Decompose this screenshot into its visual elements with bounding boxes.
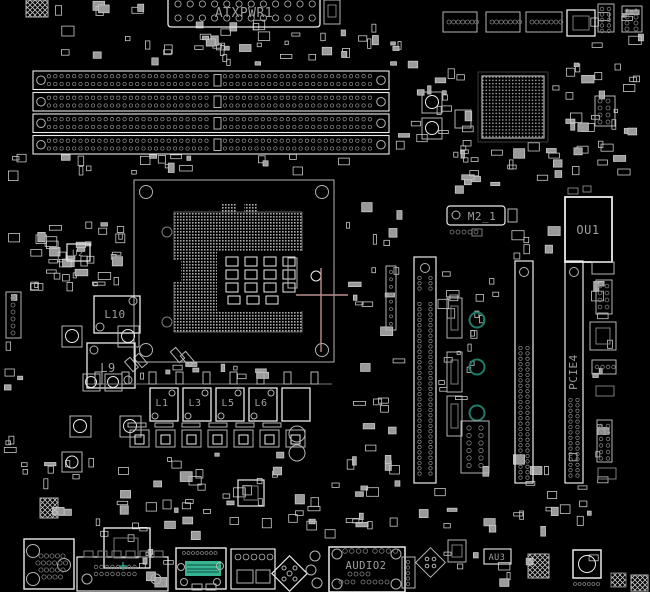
component bbox=[227, 501, 234, 505]
component bbox=[541, 526, 546, 536]
component bbox=[215, 453, 219, 456]
component bbox=[611, 573, 626, 587]
component bbox=[168, 163, 174, 172]
l1-label: L1 bbox=[155, 398, 168, 409]
board-canvas[interactable]: ATXPWR1M2_1OU1PCIE4U2L10L9L1L3L5L6AUDIO2… bbox=[0, 0, 650, 592]
component bbox=[599, 91, 604, 99]
component bbox=[545, 245, 552, 253]
component bbox=[574, 63, 579, 67]
component bbox=[255, 62, 261, 65]
hatched-component-1 bbox=[528, 554, 549, 578]
component bbox=[112, 257, 122, 266]
component bbox=[63, 259, 75, 267]
component bbox=[389, 427, 397, 434]
component bbox=[395, 481, 400, 486]
component bbox=[240, 45, 252, 52]
component bbox=[385, 455, 391, 463]
component bbox=[361, 364, 371, 372]
component bbox=[362, 203, 372, 212]
component bbox=[277, 452, 284, 458]
board-view: ATXPWR1M2_1OU1PCIE4U2L10L9L1L3L5L6AUDIO2… bbox=[0, 0, 650, 592]
component bbox=[489, 525, 496, 532]
component bbox=[120, 506, 128, 514]
component bbox=[447, 508, 457, 511]
l10-label: L10 bbox=[104, 308, 125, 321]
component bbox=[548, 227, 560, 236]
component bbox=[500, 579, 509, 587]
component bbox=[166, 370, 170, 374]
component bbox=[455, 186, 463, 193]
component bbox=[138, 4, 144, 11]
component bbox=[203, 36, 209, 40]
component bbox=[473, 553, 478, 558]
component bbox=[461, 151, 465, 158]
component bbox=[193, 368, 199, 372]
component bbox=[419, 510, 428, 518]
component bbox=[397, 211, 402, 220]
component bbox=[75, 269, 88, 276]
component bbox=[491, 182, 500, 185]
component bbox=[408, 61, 418, 68]
component bbox=[191, 531, 200, 539]
atx-label: ATXPWR1 bbox=[215, 6, 273, 21]
mounting-hole-1 bbox=[26, 0, 48, 17]
component bbox=[389, 229, 397, 238]
component bbox=[101, 223, 108, 226]
component bbox=[372, 36, 378, 45]
component bbox=[273, 467, 281, 475]
component bbox=[93, 52, 101, 58]
component bbox=[150, 155, 157, 159]
component bbox=[187, 156, 191, 160]
chipset-bga[interactable] bbox=[482, 76, 544, 138]
component bbox=[553, 160, 562, 167]
component bbox=[18, 376, 23, 380]
component bbox=[349, 282, 362, 287]
component bbox=[587, 511, 591, 515]
component bbox=[61, 155, 70, 161]
component bbox=[391, 42, 396, 45]
component bbox=[341, 30, 345, 36]
component bbox=[363, 424, 375, 429]
u2-label: U2 bbox=[72, 249, 84, 259]
component bbox=[4, 385, 11, 390]
component bbox=[217, 251, 303, 311]
audio-label: AUDIO2 bbox=[346, 560, 387, 572]
component bbox=[257, 372, 269, 378]
component bbox=[483, 466, 489, 476]
component bbox=[546, 149, 556, 153]
component bbox=[398, 134, 409, 138]
ou1-label: OU1 bbox=[576, 223, 599, 237]
l3-label: L3 bbox=[188, 398, 201, 409]
component bbox=[99, 5, 110, 13]
l6-label: L6 bbox=[254, 398, 267, 409]
component bbox=[582, 75, 594, 83]
pcie4-label: PCIE4 bbox=[567, 354, 580, 390]
component bbox=[484, 519, 495, 526]
component bbox=[599, 369, 602, 375]
component bbox=[165, 521, 176, 528]
component bbox=[356, 492, 364, 497]
component bbox=[428, 86, 431, 94]
l5-label: L5 bbox=[221, 398, 234, 409]
component bbox=[393, 46, 399, 50]
component bbox=[628, 128, 637, 135]
component bbox=[514, 149, 525, 159]
component bbox=[221, 364, 225, 371]
component bbox=[322, 47, 332, 55]
component bbox=[381, 327, 393, 336]
component bbox=[391, 62, 397, 65]
component bbox=[38, 232, 45, 241]
component bbox=[578, 123, 589, 131]
hatched-component-2 bbox=[631, 575, 648, 591]
component bbox=[45, 463, 56, 466]
component bbox=[76, 242, 85, 247]
component bbox=[154, 481, 162, 487]
component bbox=[40, 498, 58, 518]
component bbox=[435, 78, 446, 83]
component bbox=[152, 58, 158, 65]
component bbox=[295, 495, 304, 504]
component bbox=[225, 46, 230, 50]
component bbox=[342, 51, 347, 57]
component bbox=[353, 295, 357, 300]
component bbox=[168, 260, 181, 282]
m2-label: M2_1 bbox=[468, 210, 497, 223]
component bbox=[353, 457, 357, 465]
component bbox=[613, 156, 625, 162]
component bbox=[175, 508, 179, 512]
au3-label: AU3 bbox=[489, 553, 506, 563]
component bbox=[183, 517, 193, 524]
component bbox=[530, 467, 542, 475]
component bbox=[551, 507, 558, 515]
component bbox=[263, 161, 268, 166]
component bbox=[555, 171, 562, 178]
component bbox=[442, 91, 446, 95]
component bbox=[359, 513, 363, 519]
l9-label: L9 bbox=[100, 361, 115, 375]
component bbox=[121, 491, 131, 499]
component bbox=[574, 148, 582, 155]
